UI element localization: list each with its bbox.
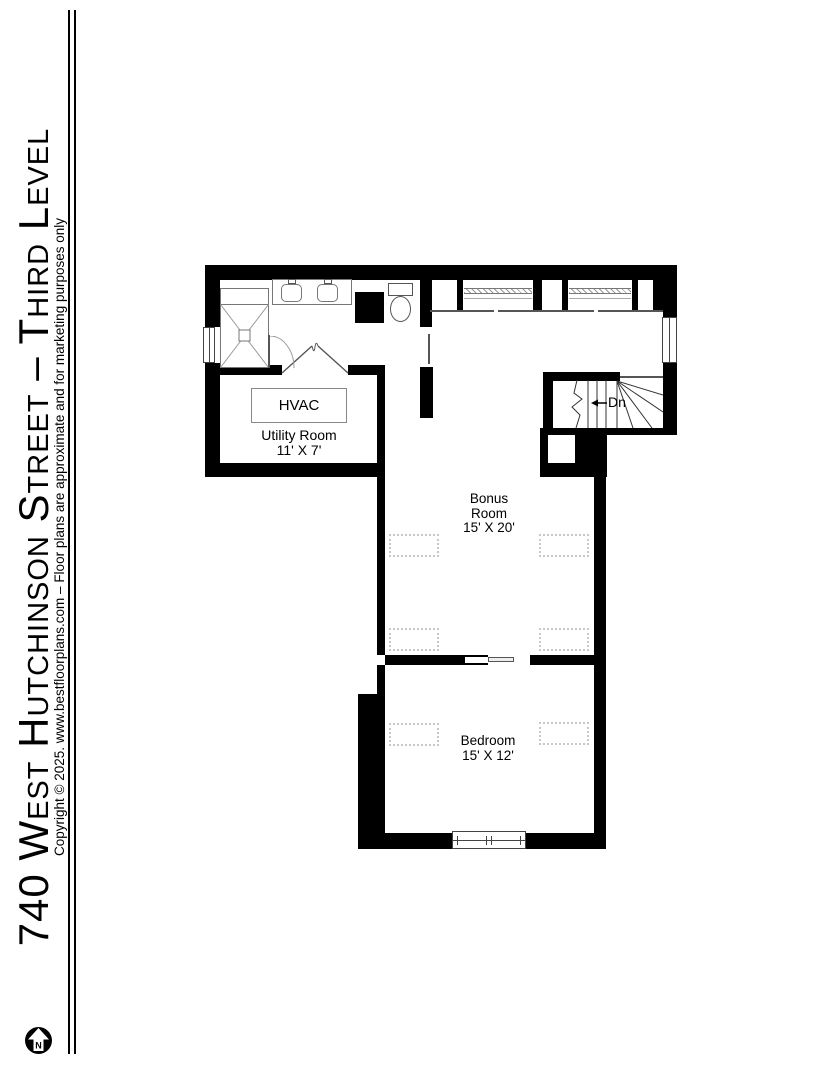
dashed-marker (539, 628, 589, 651)
copyright-text: Copyright © 2025. www.bestfloorplans.com… (52, 12, 67, 1062)
bonus-room-name: Bonus Room (463, 492, 515, 521)
wall-closet-stub-5 (653, 280, 663, 312)
wall-utility-bottom (205, 463, 385, 477)
window-mullion-line (209, 328, 210, 362)
pocket-door-slot (465, 655, 488, 665)
window-mullion-line (669, 318, 670, 362)
utility-room-label: Utility Room 11' X 7' (239, 428, 359, 458)
sink-icon (281, 284, 302, 302)
closet-rod-icon (464, 288, 532, 294)
faucet-icon (288, 279, 296, 284)
wall-closet-stub-3 (562, 280, 568, 312)
bonus-room-dims: 15' X 20' (434, 521, 544, 536)
closet-shelf-line (464, 298, 532, 299)
wall-bedroom-west-thin (377, 665, 385, 694)
wall-top (205, 265, 677, 280)
wall-pocket-left (385, 655, 465, 665)
wall-bedroom-east (594, 665, 606, 833)
wall-left-lower (205, 363, 220, 477)
window-tick (457, 836, 458, 845)
bonus-room-label: Bonus Room 15' X 20' (434, 492, 544, 536)
utility-room-dims: 11' X 7' (239, 443, 359, 458)
shower-icon (220, 288, 269, 368)
dashed-marker (539, 534, 589, 557)
wall-stair-south (540, 428, 677, 435)
closet-front-line-3 (598, 310, 663, 312)
wall-chase-east (575, 435, 607, 477)
wall-left-upper (205, 265, 220, 327)
door-swing-arc (269, 336, 295, 369)
window-east-icon (662, 317, 677, 363)
compass-n-label: N (35, 1041, 42, 1051)
wall-right-lower (663, 363, 677, 435)
wall-right-upper (663, 265, 677, 317)
wall-closet-stub-2 (533, 280, 542, 312)
window-west-icon (203, 327, 215, 363)
north-arrow-icon: N (24, 1026, 53, 1055)
dashed-marker (389, 628, 439, 651)
window-tick (491, 836, 492, 845)
wall-stair-west (543, 372, 553, 435)
pocket-door-slab-icon (488, 657, 514, 662)
door-leaf-line (428, 334, 430, 364)
toilet-bowl-icon (390, 296, 411, 322)
dashed-marker (389, 534, 439, 557)
bedroom-name: Bedroom (428, 733, 548, 748)
window-tick (520, 836, 521, 845)
hvac-label: HVAC (279, 397, 320, 414)
window-glass-line (453, 840, 525, 841)
wall-bonus-west (377, 375, 385, 655)
hvac-unit: HVAC (251, 388, 347, 423)
utility-room-name: Utility Room (239, 428, 359, 443)
closet-front-line-2 (498, 310, 594, 312)
closet-shelf-line (569, 298, 631, 299)
faucet-icon (324, 279, 332, 284)
toilet-tank-icon (388, 283, 413, 296)
wall-chase-south (548, 463, 575, 477)
wall-closet-stub-4 (632, 280, 638, 312)
floor-plan-page: 740 West Hutchinson Street – Third Level… (0, 0, 835, 1080)
bedroom-dims: 15' X 12' (428, 748, 548, 763)
window-bedroom-icon (452, 831, 526, 849)
wall-closet-stub-1 (457, 280, 463, 312)
closet-front-line-1 (430, 310, 494, 312)
wall-chase-west (540, 435, 548, 477)
sink-icon (317, 284, 338, 302)
wall-bonus-east (594, 477, 606, 655)
wall-bedroom-west (358, 694, 385, 833)
wall-bath-utility-right (348, 365, 385, 375)
wall-bath-east-lower (420, 367, 433, 418)
wall-pocket-right (530, 655, 606, 665)
bedroom-label: Bedroom 15' X 12' (428, 733, 548, 763)
stairs-down-label: Dn (608, 394, 638, 410)
wall-bath-east-upper (420, 280, 432, 327)
wall-toilet-partition (355, 292, 384, 323)
window-tick (486, 836, 487, 845)
sidebar-divider-rule (68, 10, 76, 1054)
closet-rod-icon (569, 288, 631, 294)
